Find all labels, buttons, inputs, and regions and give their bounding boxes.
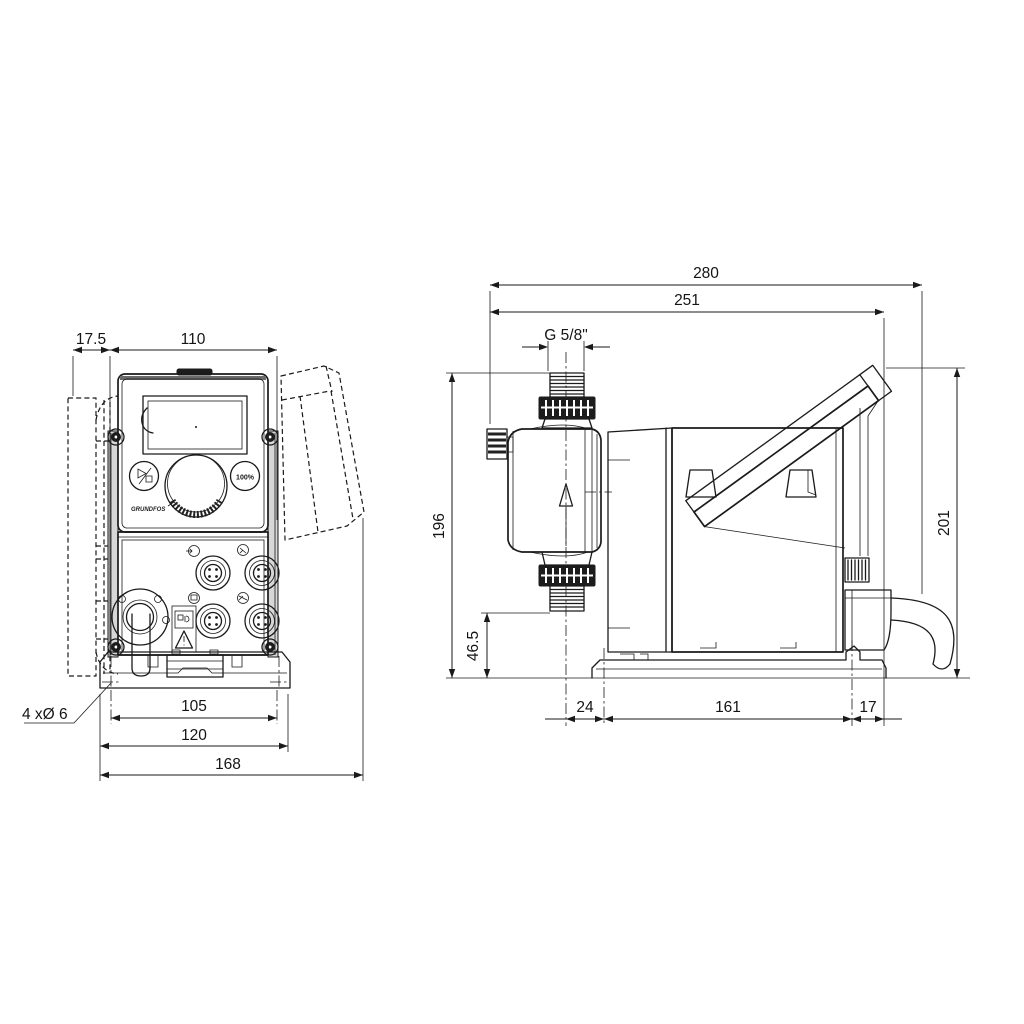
front-view: 100% GRUNDFOS [22,331,364,781]
percent-button-icon: 100% [231,462,260,491]
vent-valve-knob [487,429,513,459]
dim-plate-width-label: 120 [181,727,207,744]
dim-height-to-panel-label: 201 [936,510,953,536]
side-dimensions: 280 251 G 5/8" [431,265,970,726]
dimension-line-height-to-connection: 196 [431,373,550,678]
percent-button-label: 100% [236,475,255,482]
discharge-connection [539,373,595,428]
m12-connector [196,604,230,638]
base-plate-side [592,646,886,678]
dim-front-overhang-label: 24 [576,699,594,716]
dimension-line-body-width: 110 [110,331,277,353]
right-grip-strip [268,431,278,657]
display-screen [143,396,247,454]
technical-drawing-page: 100% GRUNDFOS [0,0,1024,1024]
drive-flange [585,428,672,652]
tilted-control-panel [686,365,892,556]
dim-body-width-label: 110 [181,331,206,348]
dimension-line-base-offsets: 24 161 17 [545,640,902,726]
dim-suction-height-label: 46.5 [465,631,482,661]
grundfos-logo: GRUNDFOS [131,507,165,513]
tilted-panel-hidden-outline [281,366,364,540]
dimension-line-depth-to-panel: 251 [490,292,884,726]
connector-function-icons [186,545,249,604]
dim-thread-label: G 5/8" [544,327,587,344]
start-stop-button-icon [130,462,159,491]
dim-base-hole-spacing-label: 161 [715,699,741,716]
control-panel: 100% GRUNDFOS [118,369,268,532]
warning-label [172,606,196,652]
mounting-holes-label: 4 xØ 6 [22,706,68,723]
dim-total-width-label: 168 [215,756,241,773]
dimension-line-total-width: 168 [100,518,363,781]
side-view: 280 251 G 5/8" [431,265,970,726]
dim-total-depth-label: 280 [693,265,719,282]
base-plate-front [100,652,290,688]
dimension-line-thread: G 5/8" [522,327,610,371]
dosing-pump-dimensional-drawing: 100% GRUNDFOS [0,0,1024,1024]
dimension-line-hole-spacing: 105 [111,690,277,724]
cable-gland [112,589,170,676]
m12-connectors [186,545,279,639]
m12-connector [196,556,230,590]
dimension-line-suction-height: 46.5 [465,613,550,678]
dim-rear-overhang-label: 17 [859,699,876,716]
pump-body [672,428,843,652]
dim-bracket-offset-label: 17.5 [76,331,106,348]
rear-cable-gland [845,558,954,669]
dim-hole-spacing-label: 105 [181,698,207,715]
dim-height-to-connection-label: 196 [431,513,448,539]
click-wheel-knob [165,455,227,517]
dosing-head [487,425,601,556]
dim-depth-to-panel-label: 251 [674,292,700,309]
mains-cable [891,598,954,669]
suction-connection [539,552,595,611]
mounting-holes-note: 4 xØ 6 [22,683,111,723]
